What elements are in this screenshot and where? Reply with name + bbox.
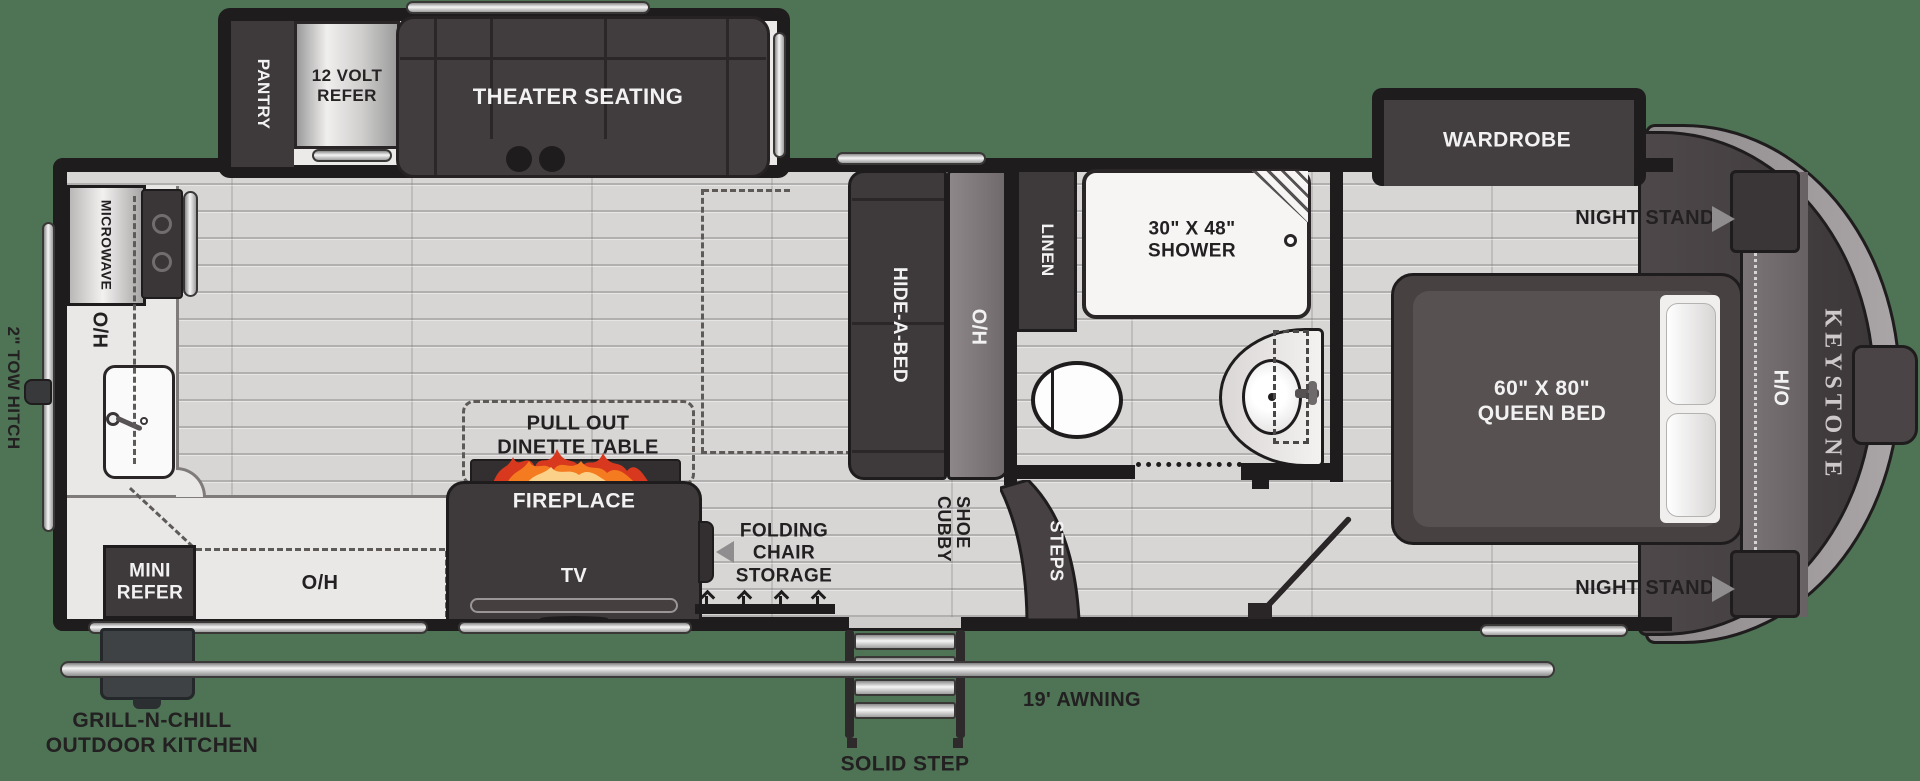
step-rail-left: [845, 630, 854, 738]
slide-outline-top: [703, 189, 790, 192]
rail-hook-icon: [774, 592, 786, 604]
wardrobe-label: WARDROBE: [1443, 129, 1571, 154]
night-stand-top-label: NIGHT STAND: [1575, 207, 1715, 231]
sofa-arm-seam: [852, 450, 944, 453]
night-stand-bottom: [1730, 550, 1800, 618]
hitch-kingpin: [1852, 345, 1918, 445]
oh-sofa-label: O/H: [968, 309, 989, 346]
outdoor-kitchen-latch: [133, 699, 161, 709]
folding-chair-arrow-icon: [716, 541, 734, 563]
sofa-arm-seam: [852, 198, 944, 201]
burner-icon: [152, 214, 172, 234]
linen-label: LINEN: [1038, 224, 1056, 277]
tow-hitch-knob: [24, 379, 52, 405]
solid-step-unit: [845, 630, 965, 752]
solid-step-label: SOLID STEP: [841, 753, 970, 778]
folding-chair-label: FOLDINGCHAIRSTORAGE: [736, 520, 832, 587]
pillow-icon: [1666, 303, 1716, 405]
refer-step: [312, 149, 392, 162]
toilet-seat-line: [1051, 369, 1054, 431]
oh-dash-bottom: [196, 548, 445, 551]
outdoor-kitchen-label: GRILL-N-CHILLOUTDOOR KITCHEN: [46, 709, 259, 759]
sofa-seam-1: [434, 19, 437, 175]
rear-wall: [53, 158, 67, 631]
tv-label: TV: [561, 565, 587, 589]
burner-icon: [152, 252, 172, 272]
12v-refrigerator: 12 VOLTREFER: [294, 21, 400, 149]
bath-door-track: [1136, 462, 1242, 467]
oh-rear-label: O/H: [89, 312, 110, 349]
step-foot: [953, 738, 963, 748]
mini-refer-label: MINIREFER: [117, 561, 183, 606]
vanity-faucet-icon: [1308, 381, 1317, 405]
bath-wall-right: [1330, 172, 1343, 482]
sofa-seam-2: [490, 19, 493, 139]
hide-a-bed-window: [836, 152, 986, 165]
tow-hitch-label: 2" TOW HITCH: [4, 326, 22, 449]
slide-outline-bottom: [701, 451, 852, 454]
cooktop: [141, 189, 183, 299]
oh-bottom-label: O/H: [302, 572, 339, 596]
oh-dash-rear: [133, 196, 136, 464]
rear-window: [42, 222, 55, 532]
bath-door-stop: [1252, 478, 1269, 489]
queen-bed-label: 60" X 80"QUEEN BED: [1478, 377, 1606, 427]
microwave-label: MICROWAVE: [99, 200, 114, 290]
steps-label: STEPS: [1047, 520, 1066, 581]
entry-door-threshold: [849, 617, 961, 631]
top-wall-rear: [53, 158, 230, 172]
slide-outline-side: [701, 189, 704, 453]
fireplace-label: FIREPLACE: [513, 490, 636, 515]
mini-refer: MINIREFER: [103, 545, 196, 619]
sidewall-window-2: [458, 621, 692, 634]
folding-chair-rack: [698, 521, 714, 583]
step-tread: [854, 702, 956, 719]
soap-dot-icon: [140, 417, 148, 425]
step-tread: [854, 679, 956, 696]
pillow-icon: [1666, 413, 1716, 517]
toilet: [1031, 361, 1123, 439]
oven-front: [183, 191, 198, 297]
bath-door-outline: [1273, 330, 1309, 444]
theater-seating-label: THEATER SEATING: [473, 84, 684, 110]
step-foot: [847, 738, 857, 748]
sofa-back-seam: [400, 57, 766, 60]
shower-knob-icon: [1284, 234, 1297, 247]
sofa-seam-4: [726, 19, 729, 175]
slideout-top-window: [406, 1, 650, 14]
bath-wall-bottom: [1004, 465, 1135, 479]
tv-screen: [470, 598, 678, 613]
night-stand-bottom-arrow-icon: [1712, 576, 1735, 602]
cupholder-icon: [506, 146, 532, 172]
bedroom-window: [1480, 624, 1628, 637]
step-tread: [854, 633, 956, 650]
shoe-cubby-label: SHOE CUBBY: [934, 496, 972, 608]
chair-rail: [695, 604, 835, 614]
tv-stand: [540, 616, 608, 621]
floorplan-canvas: PANTRY 12 VOLTREFER THEATER SEATING WARD…: [0, 0, 1920, 781]
shower-label: 30" X 48"SHOWER: [1148, 219, 1236, 264]
keystone-brand: KEYSTONE: [1819, 309, 1844, 482]
step-rail-right: [956, 630, 965, 738]
pantry-label: PANTRY: [254, 59, 272, 129]
sofa-seam-3: [604, 19, 607, 139]
awning-tube: [60, 661, 1555, 678]
pantry-cabinet: PANTRY: [231, 21, 294, 167]
night-stand-top: [1730, 170, 1800, 253]
rail-hook-icon: [700, 592, 712, 604]
night-stand-bottom-label: NIGHT STAND: [1575, 577, 1715, 601]
slideout-side-window: [773, 32, 786, 158]
hide-a-bed-label: HIDE-A-BED: [889, 267, 909, 383]
night-stand-top-arrow-icon: [1712, 206, 1735, 232]
flames-icon: [487, 441, 655, 483]
awning-label: 19' AWNING: [1023, 689, 1141, 713]
12v-refer-label: 12 VOLTREFER: [312, 66, 383, 106]
rail-hook-icon: [737, 592, 749, 604]
rail-hook-icon: [811, 592, 823, 604]
cupholder-icon: [539, 146, 565, 172]
ho-front-label: H/O: [1770, 370, 1791, 407]
